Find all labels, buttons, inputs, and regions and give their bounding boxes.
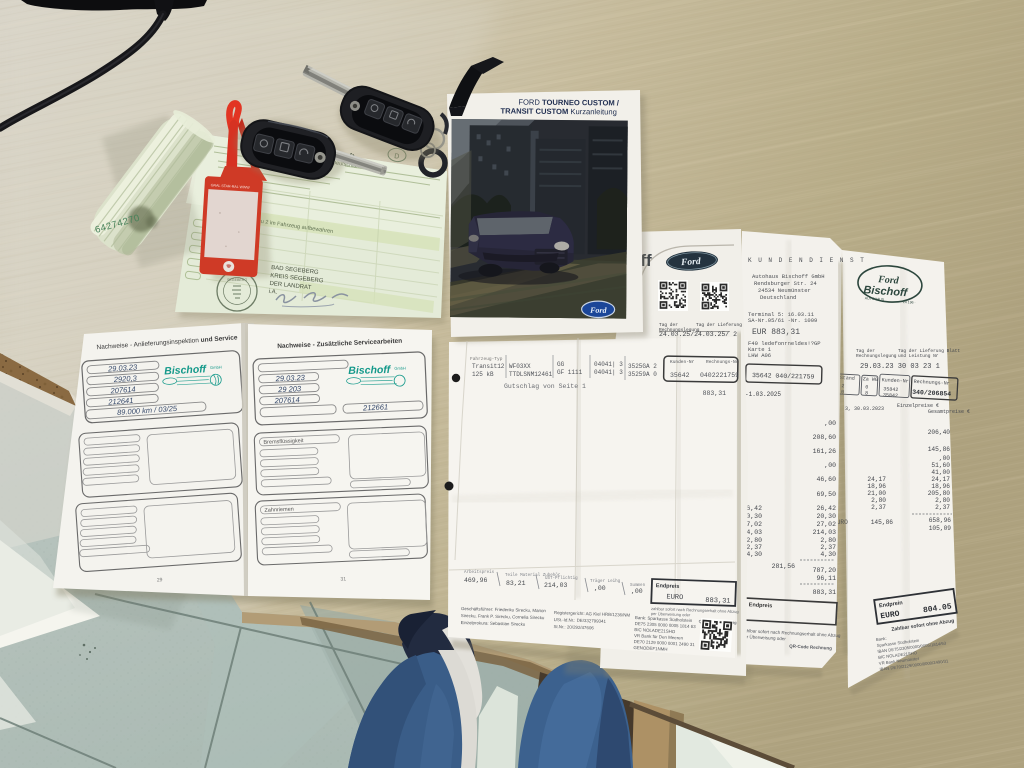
svg-text:2920,3: 2920,3 — [112, 373, 137, 384]
svg-text:EURO: EURO — [666, 594, 683, 603]
svg-text:SA-Nr.05/61 -Nr. 1009: SA-Nr.05/61 -Nr. 1009 — [748, 317, 817, 324]
svg-text:WF03XX: WF03XX — [509, 363, 531, 370]
svg-text:04041| 3: 04041| 3 — [594, 369, 623, 376]
svg-text:883,31: 883,31 — [813, 589, 837, 596]
svg-text:20,30: 20,30 — [816, 513, 836, 520]
svg-text:4,30: 4,30 — [820, 551, 836, 558]
svg-text:,00: ,00 — [824, 462, 836, 469]
svg-text:Kunden-Nr: Kunden-Nr — [670, 359, 695, 365]
svg-text:161,26: 161,26 — [813, 448, 837, 455]
svg-text:Za WG: Za WG — [863, 376, 878, 383]
svg-text:Zahnriemen: Zahnriemen — [264, 507, 294, 514]
svg-text:207614: 207614 — [109, 385, 136, 396]
svg-text:Tag der Lieferung: Tag der Lieferung — [696, 322, 742, 328]
svg-text:2,80: 2,80 — [820, 537, 836, 544]
svg-text:83,21: 83,21 — [506, 580, 526, 587]
svg-text:35842: 35842 — [883, 392, 898, 399]
svg-text:212641: 212641 — [107, 396, 134, 407]
svg-text:2,37: 2,37 — [746, 544, 762, 551]
svg-text:35259A 0: 35259A 0 — [628, 371, 657, 378]
svg-text:,00: ,00 — [631, 588, 643, 595]
svg-text:Endpreis: Endpreis — [656, 583, 680, 590]
svg-text:69,50: 69,50 — [816, 491, 836, 498]
svg-text:24,17: 24,17 — [931, 476, 950, 483]
svg-text:24,17: 24,17 — [867, 476, 886, 483]
svg-text:24.03.25/24.03.25/ 2: 24.03.25/24.03.25/ 2 — [659, 331, 737, 338]
svg-text:125 kB: 125 kB — [472, 371, 494, 378]
svg-text:212661: 212661 — [362, 402, 388, 412]
svg-text:Rechnungs-Nr: Rechnungs-Nr — [706, 359, 739, 365]
svg-text:21,00: 21,00 — [867, 490, 886, 497]
svg-text:4,30: 4,30 — [746, 551, 762, 558]
svg-text:883,31: 883,31 — [703, 390, 727, 397]
svg-text:26,42: 26,42 — [816, 505, 836, 512]
svg-text:29 203: 29 203 — [277, 384, 302, 394]
svg-text:GG: GG — [557, 361, 565, 368]
svg-text:4,03: 4,03 — [746, 529, 762, 536]
svg-text:2,37: 2,37 — [820, 544, 836, 551]
svg-text:205,80: 205,80 — [928, 490, 951, 497]
svg-text:TRANSIT CUSTOM Kurzanleitung: TRANSIT CUSTOM Kurzanleitung — [500, 106, 616, 116]
svg-text:,00: ,00 — [824, 420, 836, 427]
svg-text:-1.03.2025: -1.03.2025 — [745, 391, 781, 398]
svg-text:GF 1111: GF 1111 — [557, 369, 583, 376]
svg-text:51,60: 51,60 — [931, 462, 950, 469]
svg-text:2,80: 2,80 — [935, 497, 950, 504]
svg-text:29: 29 — [157, 577, 163, 583]
svg-text:3, 30.03.2023: 3, 30.03.2023 — [845, 406, 884, 412]
svg-text:Bischoff: Bischoff — [164, 363, 208, 377]
svg-text:208,60: 208,60 — [813, 434, 837, 441]
svg-text:46,60: 46,60 — [816, 476, 836, 483]
svg-text:i.A.: i.A. — [268, 289, 278, 296]
svg-text:,00: ,00 — [594, 585, 606, 592]
svg-text:214,03: 214,03 — [544, 582, 568, 589]
svg-text:207614: 207614 — [273, 395, 299, 405]
svg-text:96,11: 96,11 — [816, 575, 836, 582]
svg-text:2,37: 2,37 — [871, 504, 886, 511]
svg-text:2,37: 2,37 — [935, 504, 950, 511]
svg-text:35642: 35642 — [670, 372, 690, 379]
svg-text:31: 31 — [340, 576, 346, 582]
svg-text:Transit12: Transit12 — [472, 363, 505, 370]
svg-text:27,02: 27,02 — [816, 521, 836, 528]
svg-text:Bischoff: Bischoff — [348, 364, 392, 377]
svg-text:UST-Pflichtig: UST-Pflichtig — [545, 576, 578, 581]
svg-text:Fahrzeug-Typ: Fahrzeug-Typ — [470, 356, 503, 362]
svg-text:469,96: 469,96 — [464, 577, 488, 584]
svg-text:Rechnungslegung: Rechnungslegung — [856, 353, 897, 359]
svg-text:Endpreis: Endpreis — [749, 602, 773, 609]
svg-text:658,96: 658,96 — [929, 517, 952, 524]
svg-text:18,96: 18,96 — [931, 483, 950, 490]
svg-text:04041| 3: 04041| 3 — [594, 361, 623, 368]
svg-text:Gesamtpreise €: Gesamtpreise € — [928, 409, 970, 415]
svg-text:29.03.23 30 03 23 1: 29.03.23 30 03 23 1 — [860, 363, 940, 371]
svg-text:Gutschlag von Seite 1: Gutschlag von Seite 1 — [504, 383, 586, 390]
svg-text:GmbH: GmbH — [394, 365, 406, 370]
svg-text:2,80: 2,80 — [746, 537, 762, 544]
svg-text:24534 Neumünster: 24534 Neumünster — [758, 287, 811, 294]
svg-text:206,40: 206,40 — [928, 429, 951, 436]
svg-text:Ford: Ford — [680, 257, 701, 268]
svg-text:und Leistung Nr: und Leistung Nr — [898, 353, 939, 359]
svg-text:787,20: 787,20 — [813, 567, 837, 574]
svg-text:8: 8 — [865, 390, 868, 396]
svg-text:145,86: 145,86 — [928, 446, 951, 453]
svg-text:GmbH: GmbH — [210, 364, 222, 370]
svg-text:281,56: 281,56 — [772, 563, 796, 570]
svg-text:214,03: 214,03 — [813, 529, 837, 536]
svg-text:883,31: 883,31 — [705, 597, 730, 606]
svg-text:18,96: 18,96 — [867, 483, 886, 490]
svg-text:145,86: 145,86 — [871, 519, 894, 526]
svg-text:105,09: 105,09 — [929, 525, 952, 532]
svg-text:29.03.23: 29.03.23 — [274, 373, 305, 383]
svg-text:0402221759: 0402221759 — [700, 372, 739, 379]
svg-text:2,80: 2,80 — [871, 497, 886, 504]
svg-text:,00: ,00 — [939, 455, 950, 462]
svg-text:Arbeitspreis: Arbeitspreis — [464, 570, 495, 575]
svg-text:K U N D E N D I E N S T: K U N D E N D I E N S T — [748, 257, 865, 264]
svg-text:Träger Leihg: Träger Leihg — [590, 579, 621, 584]
svg-text:Ford: Ford — [589, 306, 608, 315]
svg-text:3525GA 2: 3525GA 2 — [628, 363, 657, 370]
svg-text:TTDLSNM12461: TTDLSNM12461 — [509, 371, 553, 378]
svg-text:41,00: 41,00 — [931, 469, 950, 476]
svg-text:LHW A06: LHW A06 — [748, 352, 771, 359]
